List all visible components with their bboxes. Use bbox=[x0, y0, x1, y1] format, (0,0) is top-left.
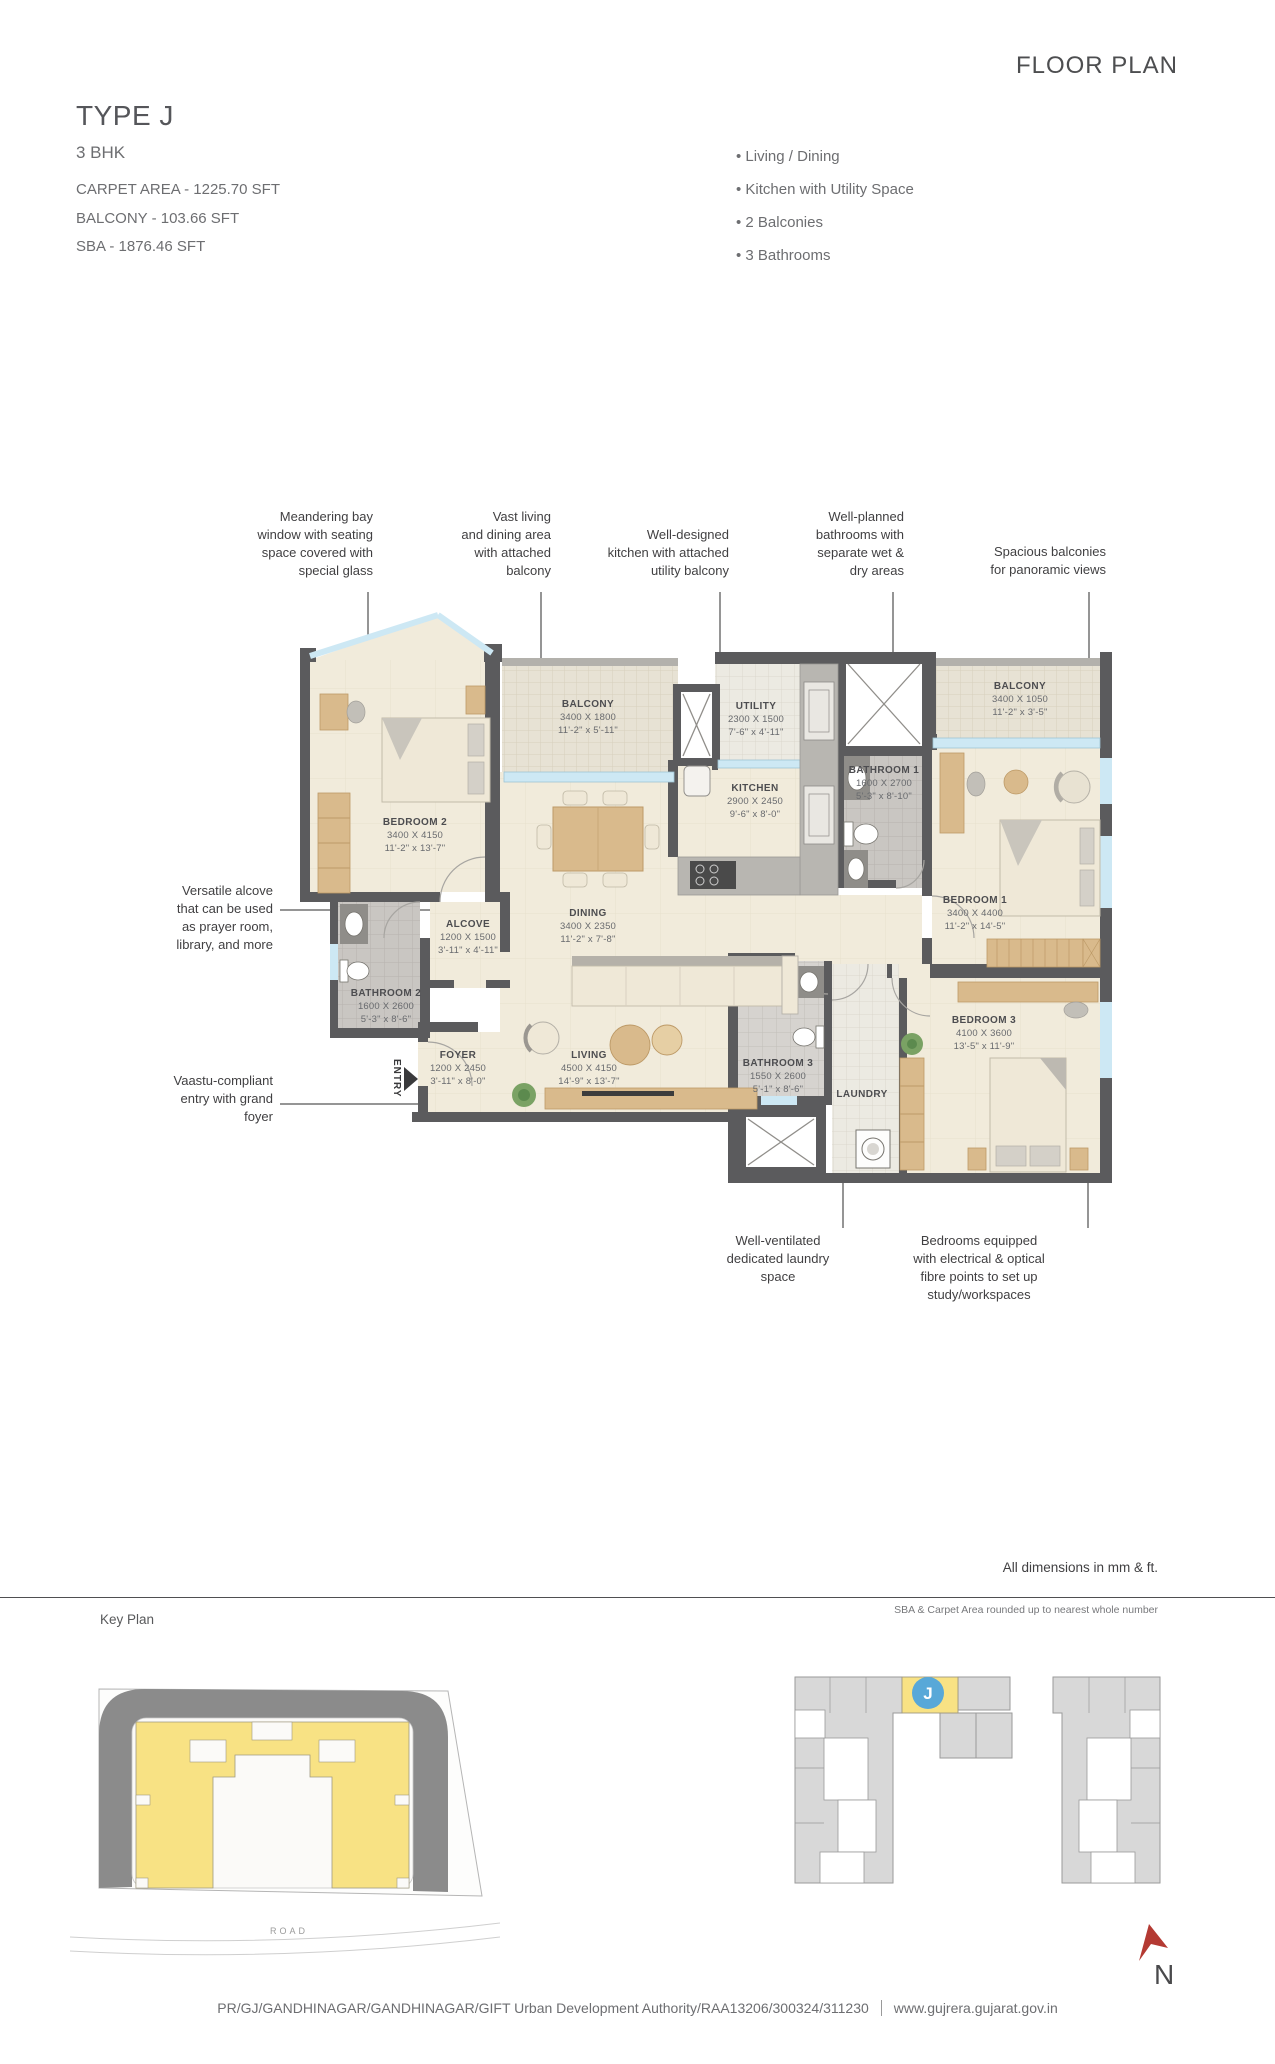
carpet-area-text: CARPET AREA - 1225.70 SFT bbox=[76, 181, 280, 198]
entry-label: ENTRY bbox=[391, 1054, 402, 1102]
page-title: FLOOR PLAN bbox=[1016, 52, 1178, 80]
annotation-bathrooms: Well-planned bathrooms with separate wet… bbox=[744, 508, 904, 580]
unit-badge-label: J bbox=[923, 1684, 932, 1703]
website-link[interactable]: www.gujrera.gujarat.gov.in bbox=[894, 2000, 1058, 2016]
annotation-bay-window: Meandering bay window with seating space… bbox=[213, 508, 373, 580]
road-label: ROAD bbox=[270, 1926, 308, 1936]
north-label: N bbox=[1154, 1959, 1174, 1990]
annotation-balconies: Spacious balconies for panoramic views bbox=[944, 543, 1106, 579]
site-keyplan: ROAD bbox=[70, 1645, 500, 1960]
annotation-living-dining: Vast living and dining area with attache… bbox=[391, 508, 551, 580]
divider-line bbox=[0, 1597, 1275, 1598]
feature-item: Kitchen with Utility Space bbox=[736, 173, 914, 206]
sba-area-text: SBA - 1876.46 SFT bbox=[76, 238, 205, 255]
unit-type-title: TYPE J bbox=[76, 100, 174, 132]
floor-plan-page: FLOOR PLAN TYPE J 3 BHK CARPET AREA - 12… bbox=[0, 0, 1275, 2064]
feature-list: Living / Dining Kitchen with Utility Spa… bbox=[736, 140, 914, 272]
keyplan-heading: Key Plan bbox=[100, 1612, 154, 1627]
north-arrow-icon: N bbox=[1118, 1912, 1198, 1992]
annotation-alcove: Versatile alcove that can be used as pra… bbox=[113, 882, 273, 954]
annotation-kitchen: Well-designed kitchen with attached util… bbox=[569, 526, 729, 580]
feature-item: Living / Dining bbox=[736, 140, 914, 173]
building-keyplan: J bbox=[780, 1648, 1175, 1893]
bhk-subtitle: 3 BHK bbox=[76, 143, 125, 163]
entry-arrow-icon bbox=[404, 1067, 418, 1091]
annotation-laundry: Well-ventilated dedicated laundry space bbox=[698, 1232, 858, 1286]
feature-item: 3 Bathrooms bbox=[736, 239, 914, 272]
footer-separator bbox=[881, 2000, 882, 2016]
feature-item: 2 Balconies bbox=[736, 206, 914, 239]
rounding-note: SBA & Carpet Area rounded up to nearest … bbox=[894, 1604, 1158, 1616]
annotation-bedrooms: Bedrooms equipped with electrical & opti… bbox=[888, 1232, 1070, 1304]
annotation-entry: Vaastu-compliant entry with grand foyer bbox=[113, 1072, 273, 1126]
balcony-area-text: BALCONY - 103.66 SFT bbox=[76, 210, 239, 227]
dimension-note: All dimensions in mm & ft. bbox=[1003, 1560, 1158, 1575]
footer: PR/GJ/GANDHINAGAR/GANDHINAGAR/GIFT Urban… bbox=[0, 2000, 1275, 2016]
rera-number: PR/GJ/GANDHINAGAR/GANDHINAGAR/GIFT Urban… bbox=[217, 2000, 869, 2016]
floor-plan-drawing bbox=[300, 598, 1115, 1193]
